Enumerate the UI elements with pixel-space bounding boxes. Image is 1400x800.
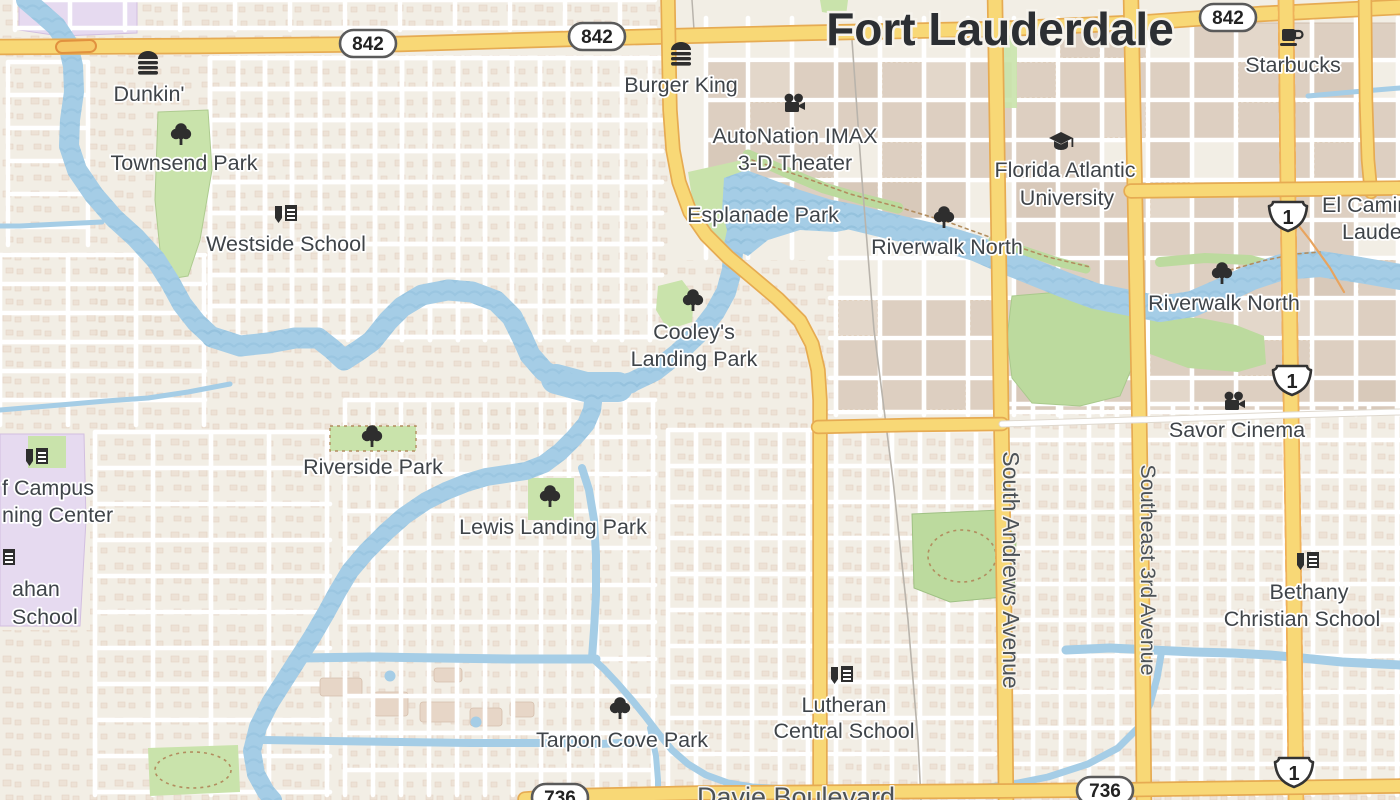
- svg-text:Fort Lauderdale: Fort Lauderdale: [826, 3, 1174, 55]
- svg-text:Cooley's: Cooley's: [653, 320, 735, 344]
- svg-text:AutoNation IMAX: AutoNation IMAX: [713, 124, 878, 148]
- svg-text:Riverwalk North: Riverwalk North: [871, 235, 1023, 259]
- svg-text:University: University: [1020, 186, 1115, 210]
- svg-text:El Camino: El Camino: [1322, 193, 1400, 217]
- svg-text:3-D Theater: 3-D Theater: [738, 151, 852, 175]
- svg-text:South Andrews Avenue: South Andrews Avenue: [998, 451, 1024, 688]
- svg-text:1: 1: [1282, 207, 1293, 229]
- svg-text:Savor Cinema: Savor Cinema: [1169, 418, 1305, 442]
- svg-text:Landing Park: Landing Park: [631, 347, 758, 371]
- svg-text:ahan: ahan: [12, 577, 60, 601]
- svg-text:Southeast 3rd Avenue: Southeast 3rd Avenue: [1136, 464, 1160, 675]
- svg-text:f Campus: f Campus: [2, 476, 94, 500]
- svg-text:842: 842: [581, 27, 613, 48]
- svg-text:Dunkin': Dunkin': [113, 82, 184, 106]
- svg-text:1: 1: [1286, 371, 1297, 393]
- svg-text:Davie Boulevard: Davie Boulevard: [697, 782, 895, 800]
- svg-text:School: School: [12, 605, 78, 629]
- svg-text:736: 736: [544, 788, 576, 800]
- svg-text:842: 842: [352, 34, 384, 55]
- svg-text:Westside School: Westside School: [206, 232, 366, 256]
- svg-text:Esplanade Park: Esplanade Park: [687, 203, 839, 227]
- svg-text:Lutheran: Lutheran: [802, 693, 887, 717]
- svg-text:Christian School: Christian School: [1224, 607, 1381, 631]
- svg-text:ning Center: ning Center: [2, 503, 113, 527]
- svg-text:842: 842: [1212, 8, 1244, 29]
- svg-text:Townsend Park: Townsend Park: [111, 151, 258, 175]
- svg-text:Riverwalk North: Riverwalk North: [1148, 291, 1300, 315]
- svg-text:1: 1: [1288, 763, 1299, 785]
- svg-text:Lauderdale: Lauderdale: [1342, 220, 1400, 244]
- svg-text:Tarpon Cove Park: Tarpon Cove Park: [536, 728, 708, 752]
- svg-text:736: 736: [1089, 781, 1121, 800]
- svg-text:Lewis Landing Park: Lewis Landing Park: [459, 515, 647, 539]
- svg-text:Central School: Central School: [773, 719, 914, 743]
- svg-text:Starbucks: Starbucks: [1245, 53, 1341, 77]
- svg-text:Florida Atlantic: Florida Atlantic: [994, 158, 1135, 182]
- svg-text:Burger King: Burger King: [624, 73, 738, 97]
- svg-text:Bethany: Bethany: [1270, 580, 1349, 604]
- svg-text:Riverside Park: Riverside Park: [303, 455, 443, 479]
